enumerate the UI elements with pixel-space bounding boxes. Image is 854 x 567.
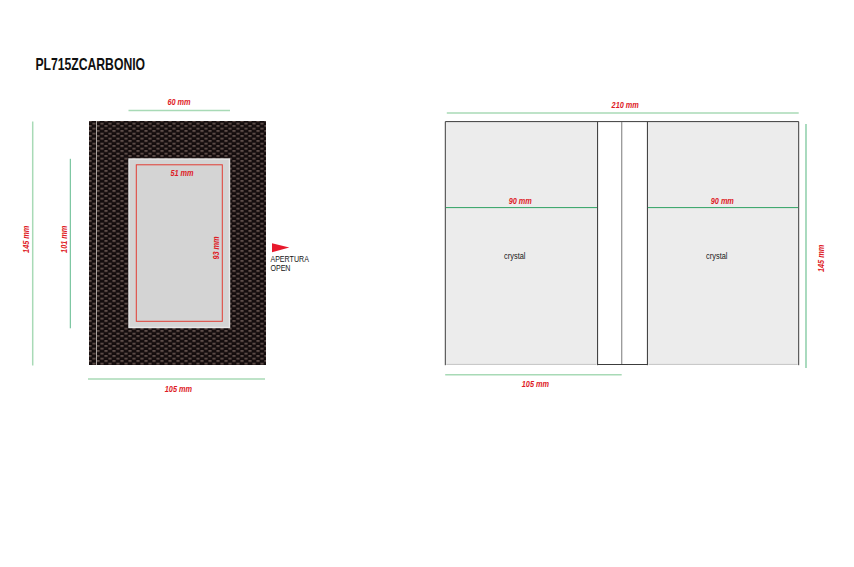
svg-text:145 mm: 145 mm: [816, 245, 826, 272]
svg-text:93 mm: 93 mm: [211, 236, 221, 259]
svg-text:crystal: crystal: [504, 252, 526, 262]
svg-text:90 mm: 90 mm: [711, 196, 734, 206]
svg-text:90 mm: 90 mm: [509, 196, 532, 206]
svg-text:60 mm: 60 mm: [167, 97, 190, 107]
svg-text:51 mm: 51 mm: [170, 169, 193, 179]
svg-text:101 mm: 101 mm: [59, 226, 69, 253]
svg-text:105 mm: 105 mm: [522, 379, 549, 389]
svg-text:crystal: crystal: [706, 252, 728, 262]
svg-text:145 mm: 145 mm: [22, 226, 32, 253]
svg-text:105 mm: 105 mm: [165, 385, 192, 395]
svg-text:OPEN: OPEN: [270, 263, 290, 273]
svg-text:PL715ZCARBONIO: PL715ZCARBONIO: [35, 55, 145, 73]
svg-text:210 mm: 210 mm: [611, 101, 639, 111]
